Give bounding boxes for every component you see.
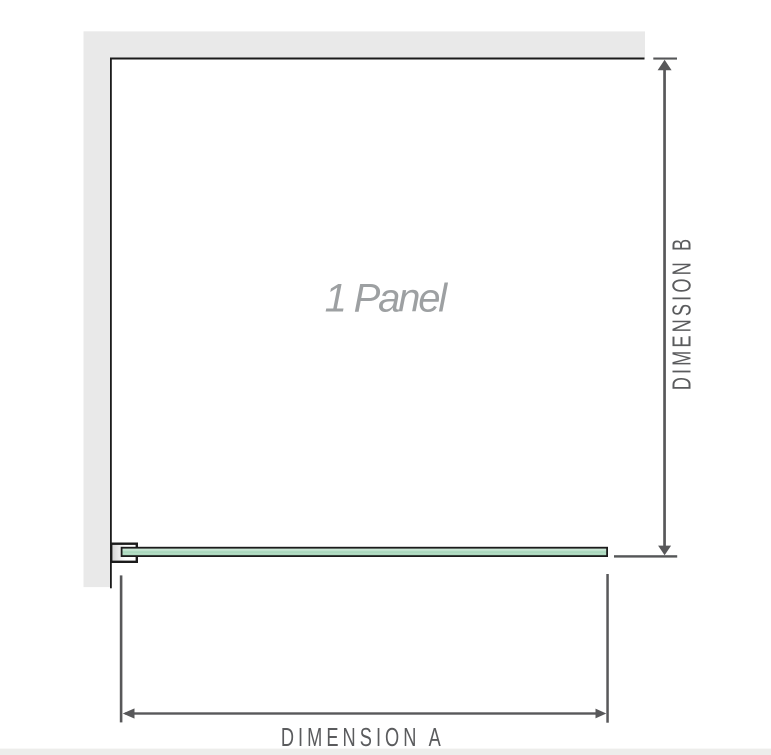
svg-text:DIMENSION B: DIMENSION B bbox=[667, 236, 696, 391]
svg-text:DIMENSION A: DIMENSION A bbox=[281, 723, 445, 752]
svg-text:1 Panel: 1 Panel bbox=[325, 277, 449, 321]
